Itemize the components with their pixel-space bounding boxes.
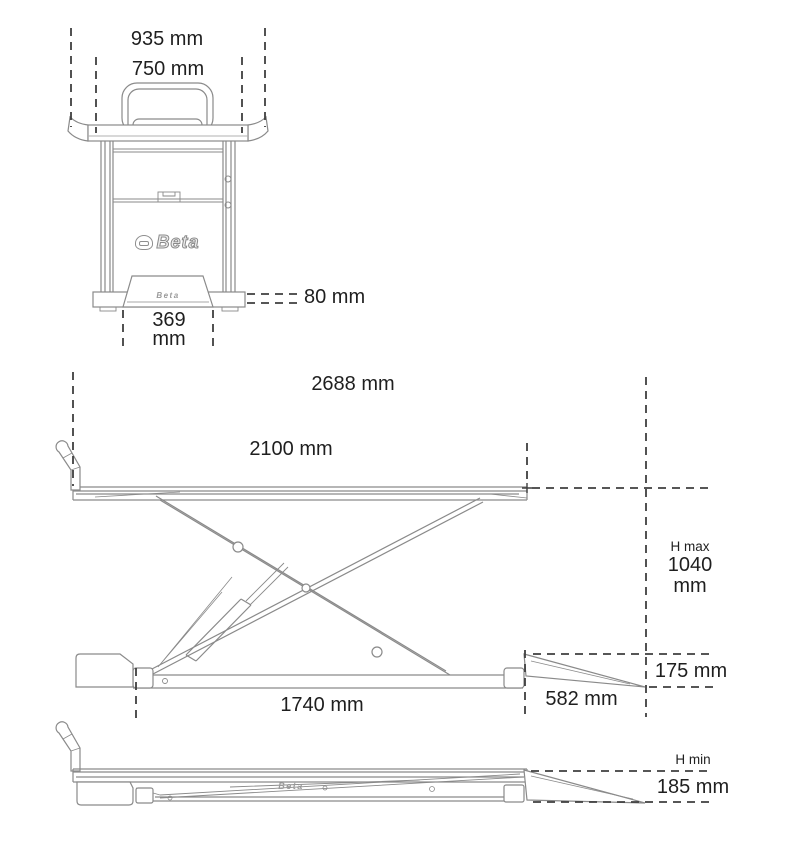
brand-logo-ramp: Beta: [138, 291, 198, 300]
dim-base-height-label: 80 mm: [304, 287, 384, 308]
dim-height-min-value: 185 mm: [648, 777, 738, 798]
dim-height-max-unit: mm: [644, 576, 736, 597]
side-view-raised: [56, 441, 645, 688]
dim-height-max-caption: H max: [644, 539, 736, 555]
brand-logo-lowered: Beta: [261, 781, 321, 791]
technical-drawing-canvas: 935 mm 750 mm 80 mm 369 mm 2688 mm 2100 …: [0, 0, 800, 858]
dim-platform-length-label: 2100 mm: [226, 439, 356, 460]
dim-height-max-value: 1040: [644, 555, 736, 576]
dim-ramp-length-label: 582 mm: [539, 689, 624, 710]
brand-logo-text: Beta: [156, 232, 199, 253]
beta-emblem-icon: [135, 235, 153, 250]
front-view: [68, 83, 268, 311]
drawing-svg: [0, 0, 800, 858]
dim-ramp-width-unit: mm: [134, 330, 204, 349]
dim-base-length-label: 1740 mm: [257, 695, 387, 716]
brand-logo: Beta: [120, 231, 215, 253]
dim-ramp-height-label: 175 mm: [650, 661, 732, 682]
dim-overall-width-label: 935 mm: [102, 29, 232, 50]
side-view-lowered: [56, 722, 645, 805]
dim-height-max-label: H max 1040 mm: [644, 539, 736, 597]
dim-height-min-caption: H min: [647, 752, 739, 768]
dim-platform-width-label: 750 mm: [103, 59, 233, 80]
dim-overall-length-label: 2688 mm: [288, 374, 418, 395]
dim-ramp-width-label: 369 mm: [134, 311, 204, 349]
dim-height-min-label: H min: [647, 752, 739, 768]
